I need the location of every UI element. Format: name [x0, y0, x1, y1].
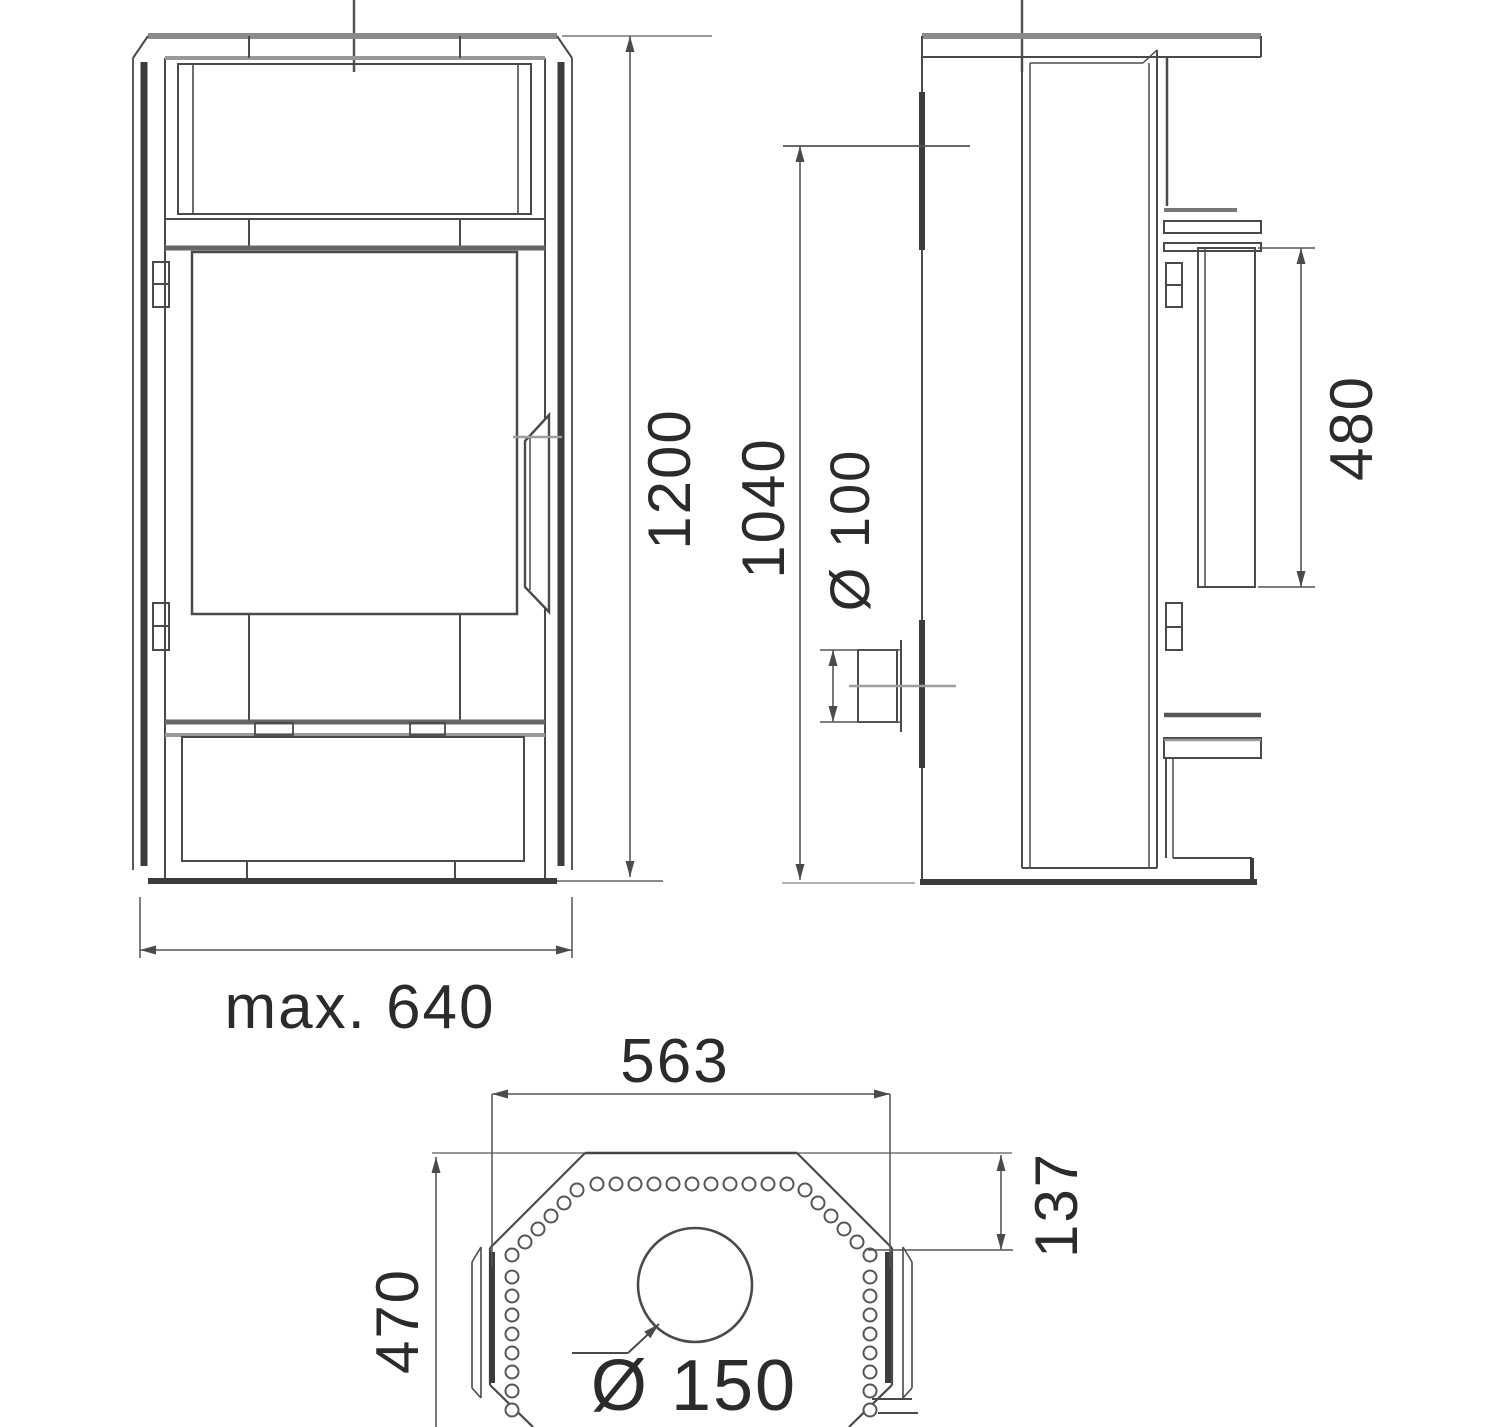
dim-label-top-rear-offset: 137 — [1027, 1152, 1087, 1258]
dim-label-top-depth: 470 — [368, 1268, 428, 1374]
dim-label-front-width: max. 640 — [224, 977, 495, 1039]
drawing-canvas — [0, 0, 1500, 1427]
dim-label-side-flue-height: 1040 — [734, 437, 794, 578]
technical-drawing-page: 1200 max. 640 1040 Ø 100 480 563 470 137… — [0, 0, 1500, 1427]
front-view — [133, 0, 663, 881]
dim-label-side-air-inlet: Ø 100 — [822, 449, 878, 612]
dim-label-top-width: 563 — [620, 1031, 729, 1093]
dim-label-top-flue-diameter: Ø 150 — [591, 1350, 797, 1422]
front-view-dimensions — [140, 36, 712, 958]
dim-label-side-rear-panel: 480 — [1322, 375, 1382, 481]
side-view — [849, 0, 1261, 882]
dim-label-front-height: 1200 — [640, 408, 700, 549]
